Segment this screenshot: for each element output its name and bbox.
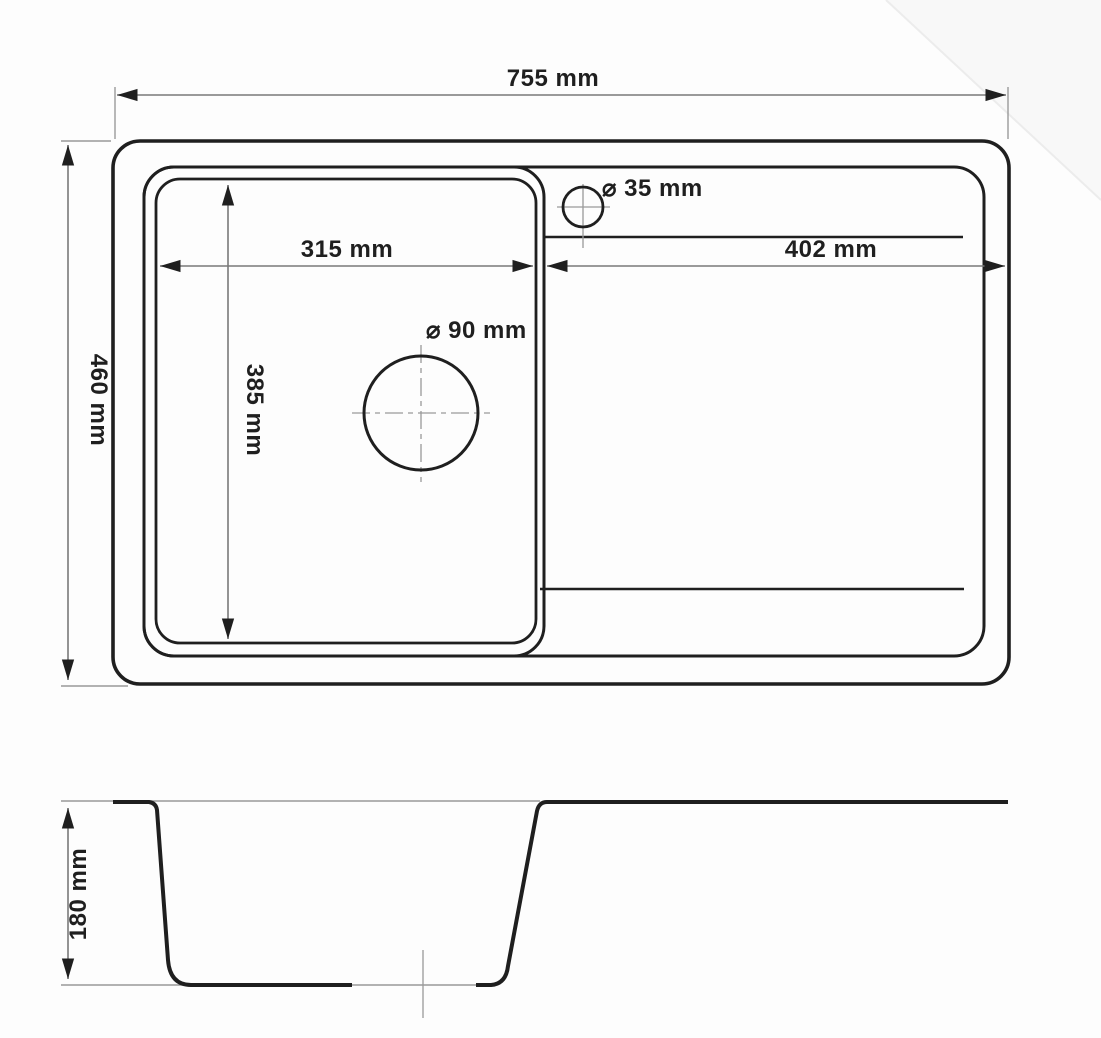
- top-view: 755 mm 460 mm 315 mm 402 mm 385 mm ⌀ 35 …: [61, 65, 1009, 686]
- section-profile-right: [476, 802, 1008, 985]
- bowl-height-label: 180 mm: [65, 848, 92, 940]
- drain-hole: [352, 345, 490, 482]
- tap-hole-diameter-label: ⌀ 35 mm: [602, 175, 703, 202]
- section-profile-left: [113, 802, 352, 985]
- overall-width-label: 755 mm: [507, 65, 599, 92]
- drain-hole-diameter-label: ⌀ 90 mm: [426, 317, 527, 344]
- overall-depth-label: 460 mm: [85, 354, 112, 446]
- page-corner-shade: [886, 0, 1101, 200]
- sink-technical-drawing: 755 mm 460 mm 315 mm 402 mm 385 mm ⌀ 35 …: [0, 0, 1101, 1038]
- section-view: 180 mm: [61, 801, 1008, 1018]
- bowl-width-label: 315 mm: [301, 236, 393, 263]
- bowl-depth-label: 385 mm: [241, 364, 268, 456]
- drainer-width-label: 402 mm: [785, 236, 877, 263]
- drawing-canvas: 755 mm 460 mm 315 mm 402 mm 385 mm ⌀ 35 …: [0, 0, 1101, 1038]
